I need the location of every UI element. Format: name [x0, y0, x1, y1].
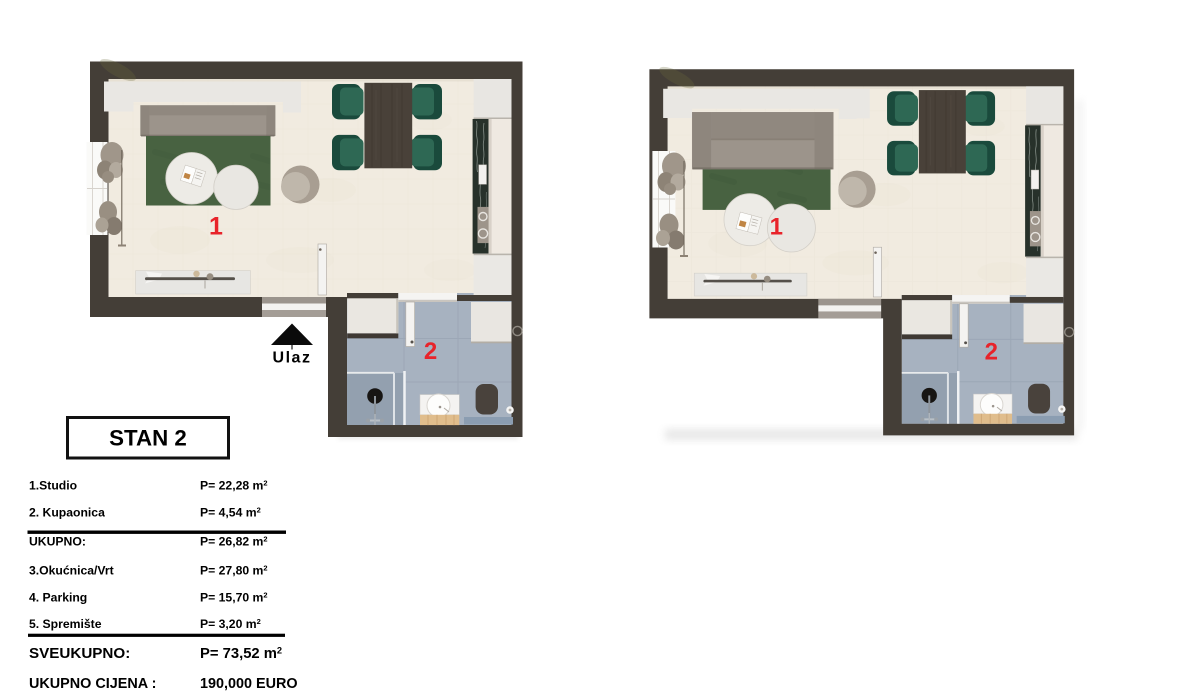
- svg-text:3.Okućnica/Vrt: 3.Okućnica/Vrt: [29, 564, 114, 578]
- svg-text:5. Spremište: 5. Spremište: [29, 617, 102, 631]
- svg-text:2: 2: [424, 338, 437, 365]
- svg-text:P= 15,70 m2: P= 15,70 m2: [200, 590, 268, 604]
- svg-text:UKUPNO CIJENA :: UKUPNO CIJENA :: [29, 676, 156, 692]
- svg-text:1: 1: [770, 213, 783, 240]
- svg-text:2: 2: [985, 338, 998, 365]
- svg-text:UKUPNO:: UKUPNO:: [29, 535, 86, 549]
- svg-text:1: 1: [209, 213, 223, 241]
- svg-text:4. Parking: 4. Parking: [29, 590, 87, 604]
- svg-text:P= 3,20 m2: P= 3,20 m2: [200, 617, 261, 631]
- svg-text:1.Studio: 1.Studio: [29, 479, 77, 493]
- svg-text:P= 73,52 m2: P= 73,52 m2: [200, 646, 282, 663]
- svg-text:P= 26,82 m2: P= 26,82 m2: [200, 535, 268, 549]
- svg-text:2. Kupaonica: 2. Kupaonica: [29, 506, 105, 520]
- svg-text:P= 27,80 m2: P= 27,80 m2: [200, 564, 268, 578]
- svg-text:P= 4,54 m2: P= 4,54 m2: [200, 506, 261, 520]
- svg-text:P= 22,28 m2: P= 22,28 m2: [200, 479, 268, 493]
- svg-text:SVEUKUPNO:: SVEUKUPNO:: [29, 645, 130, 662]
- svg-text:STAN 2: STAN 2: [109, 426, 187, 451]
- svg-text:Ulaz: Ulaz: [273, 350, 312, 367]
- svg-text:190,000 EURO: 190,000 EURO: [200, 676, 298, 692]
